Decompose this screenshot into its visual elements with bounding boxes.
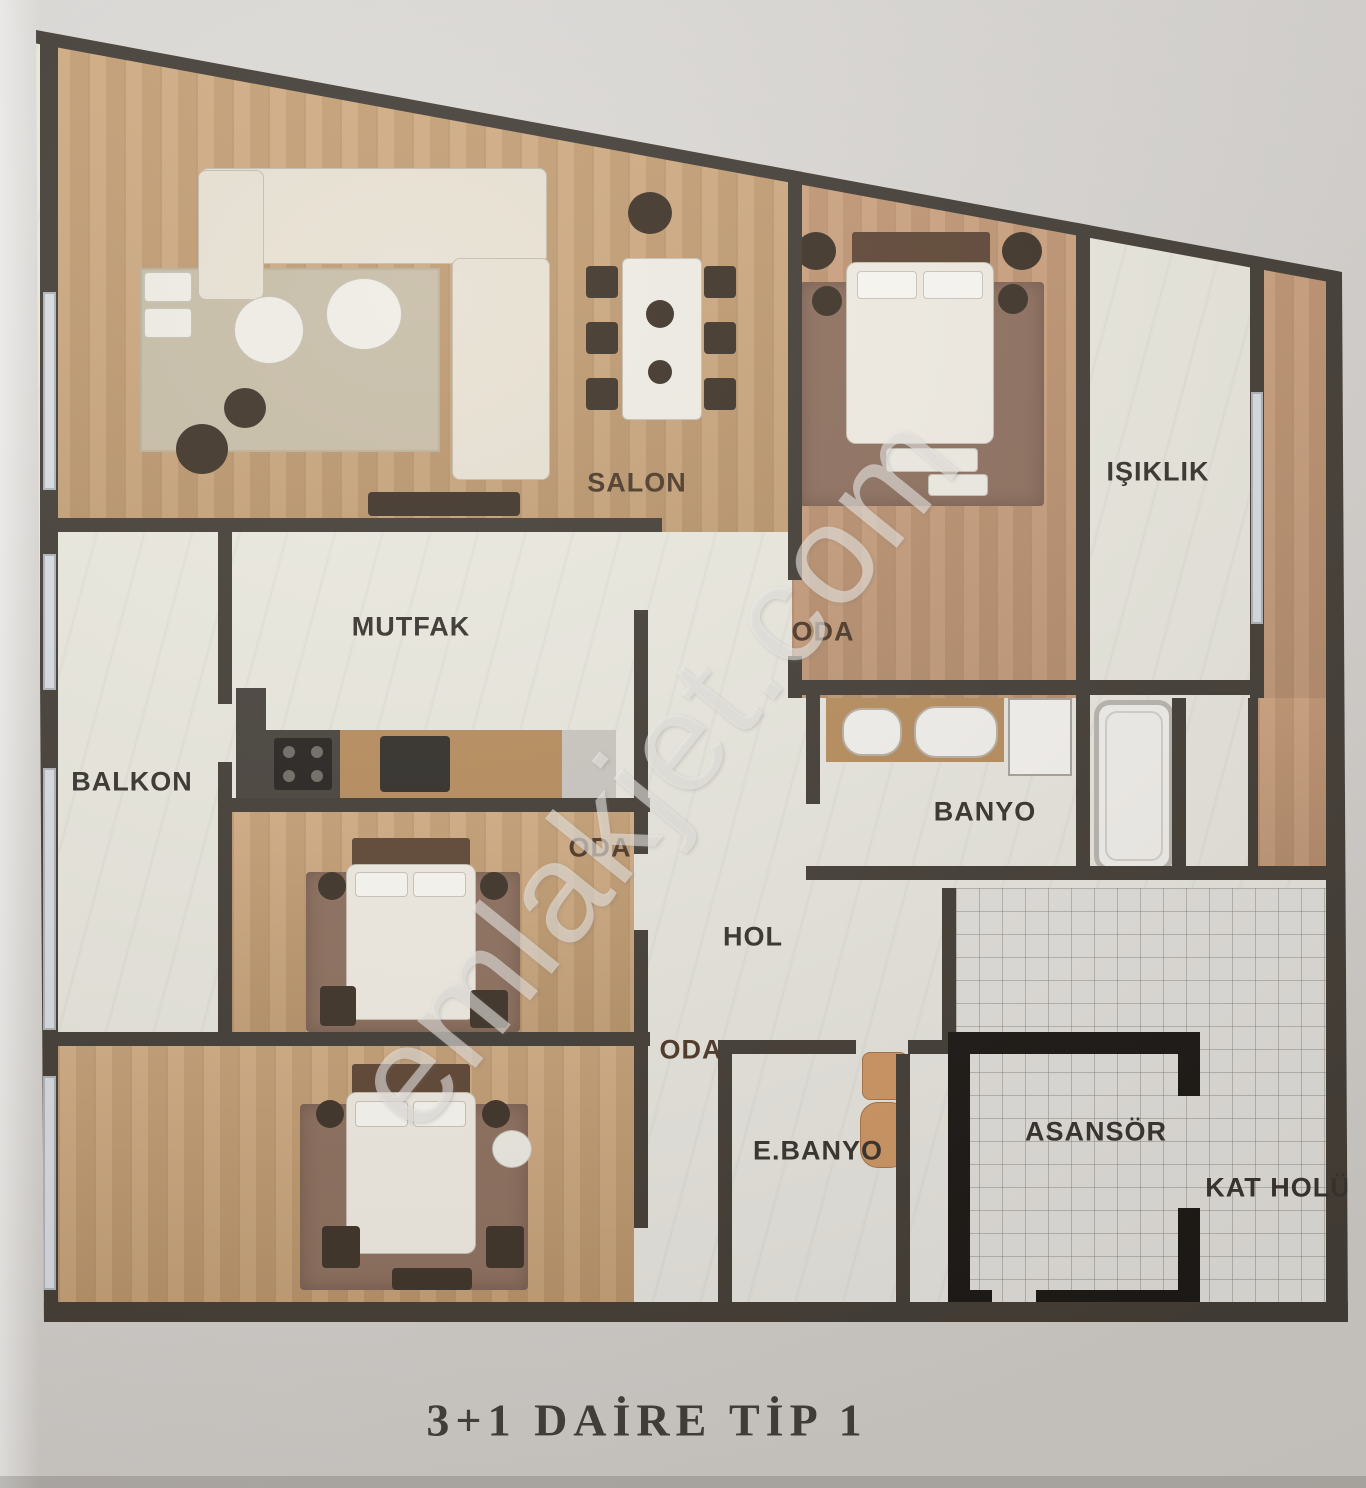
bed-headboard [852, 232, 990, 266]
side-table [144, 308, 192, 338]
wall [806, 866, 1336, 880]
dining-chair [704, 378, 736, 410]
right-corridor-strip [1258, 180, 1336, 698]
wall [788, 656, 802, 698]
armchair [234, 296, 304, 364]
elevator-wall [1178, 1032, 1200, 1096]
bed [346, 864, 476, 1020]
plan-title: 3+1 DAİRE TİP 1 [426, 1394, 867, 1447]
elevator-wall [948, 1032, 1200, 1054]
outer-wall-right [1326, 262, 1348, 1322]
dining-chair [704, 322, 736, 354]
nightstand [316, 1100, 344, 1128]
nightstand [318, 872, 346, 900]
wall [634, 1046, 648, 1228]
bedroom-chair [492, 1130, 532, 1168]
pillow [923, 271, 983, 299]
photo-bottom-shadow [0, 1476, 1366, 1488]
wall [718, 1040, 856, 1054]
nightstand [482, 1100, 510, 1128]
room-label-oda-top: ODA [792, 617, 855, 648]
room-label-oda-bottom: ODA [660, 1035, 723, 1066]
dining-chair [704, 266, 736, 298]
dining-chair [586, 266, 618, 298]
bed [346, 1092, 476, 1254]
washing-machine [1008, 698, 1072, 776]
pillow [355, 872, 408, 897]
bathtub [1094, 700, 1174, 872]
window-balkon [43, 768, 56, 1030]
wall [718, 1040, 732, 1312]
burner [311, 746, 323, 758]
pillow [413, 1101, 466, 1127]
burner [283, 770, 295, 782]
elevator-wall [948, 1032, 970, 1312]
floor-plan: SALON ODA IŞIKLIK MUTFAK BALKON BANYO OD… [0, 0, 1366, 1488]
room-label-ebanyo: E.BANYO [753, 1136, 883, 1167]
dining-chair [586, 378, 618, 410]
wall [1076, 698, 1090, 866]
sofa-chaise [198, 170, 264, 300]
room-label-balkon: BALKON [71, 767, 193, 798]
wall [52, 518, 662, 532]
dining-chair [586, 322, 618, 354]
armchair [326, 278, 402, 350]
room-label-oda-middle: ODA [569, 833, 632, 864]
wall [52, 1032, 650, 1046]
bedroom-armchair [1002, 232, 1042, 270]
wall [634, 610, 648, 854]
room-kat-holu-tiles [956, 888, 1336, 1312]
photo-left-light [0, 0, 40, 1488]
window-oda-bottom [43, 1076, 56, 1290]
room-label-asansor: ASANSÖR [1025, 1117, 1167, 1148]
bathtub-inner [1105, 711, 1163, 861]
kitchen-counter-wood [340, 730, 562, 798]
fridge [236, 688, 266, 798]
side-table [144, 272, 192, 302]
wall [634, 930, 648, 1040]
wall [896, 1054, 910, 1312]
room-label-banyo: BANYO [934, 797, 1037, 828]
pouf [224, 388, 266, 428]
pillow [355, 1101, 408, 1127]
wall [1076, 218, 1090, 698]
table-decor [646, 300, 674, 328]
floor-plan-photo: SALON ODA IŞIKLIK MUTFAK BALKON BANYO OD… [0, 0, 1366, 1488]
bedroom-item [470, 990, 508, 1028]
nightstand [812, 286, 842, 316]
bedroom-item [320, 986, 356, 1026]
nightstand [998, 284, 1028, 314]
bedroom-table [928, 474, 988, 496]
bedroom-item [322, 1226, 360, 1268]
pouf [176, 424, 228, 474]
wall [218, 518, 232, 704]
window-balkon [43, 554, 56, 690]
tv-console [368, 492, 520, 516]
cooktop [274, 738, 332, 790]
bedroom-item [486, 1226, 524, 1268]
pillow [413, 872, 466, 897]
bed-bench [392, 1268, 472, 1290]
wall [1248, 698, 1258, 866]
kitchen-sink [380, 736, 450, 792]
sofa-return [452, 258, 550, 480]
wall [942, 888, 956, 1040]
bed [846, 262, 994, 444]
dining-table [622, 258, 702, 420]
room-label-hol: HOL [723, 922, 783, 953]
room-label-salon: SALON [587, 468, 687, 499]
wall [792, 680, 1253, 695]
bedroom-armchair [796, 232, 836, 270]
window-salon [43, 292, 56, 490]
plant [628, 192, 672, 234]
sink [914, 706, 998, 758]
bed-bench [886, 448, 978, 472]
pillow [857, 271, 917, 299]
room-label-mutfak: MUTFAK [352, 612, 470, 643]
wall [218, 762, 232, 1046]
wall [1172, 698, 1186, 866]
sink [842, 708, 902, 756]
kitchen-counter-end [562, 730, 616, 798]
wall [232, 798, 650, 812]
room-label-kat-holu: KAT HOLÜ [1205, 1173, 1350, 1204]
burner [311, 770, 323, 782]
outer-wall-bottom [40, 1302, 1348, 1322]
room-label-isiklik: IŞIKLIK [1106, 457, 1209, 488]
burner [283, 746, 295, 758]
wall [806, 692, 820, 804]
nightstand [480, 872, 508, 900]
window-isiklik [1251, 392, 1263, 624]
wall [788, 160, 802, 580]
elevator-wall [1178, 1208, 1200, 1312]
table-decor [648, 360, 672, 384]
right-strip-lower [1258, 698, 1336, 866]
